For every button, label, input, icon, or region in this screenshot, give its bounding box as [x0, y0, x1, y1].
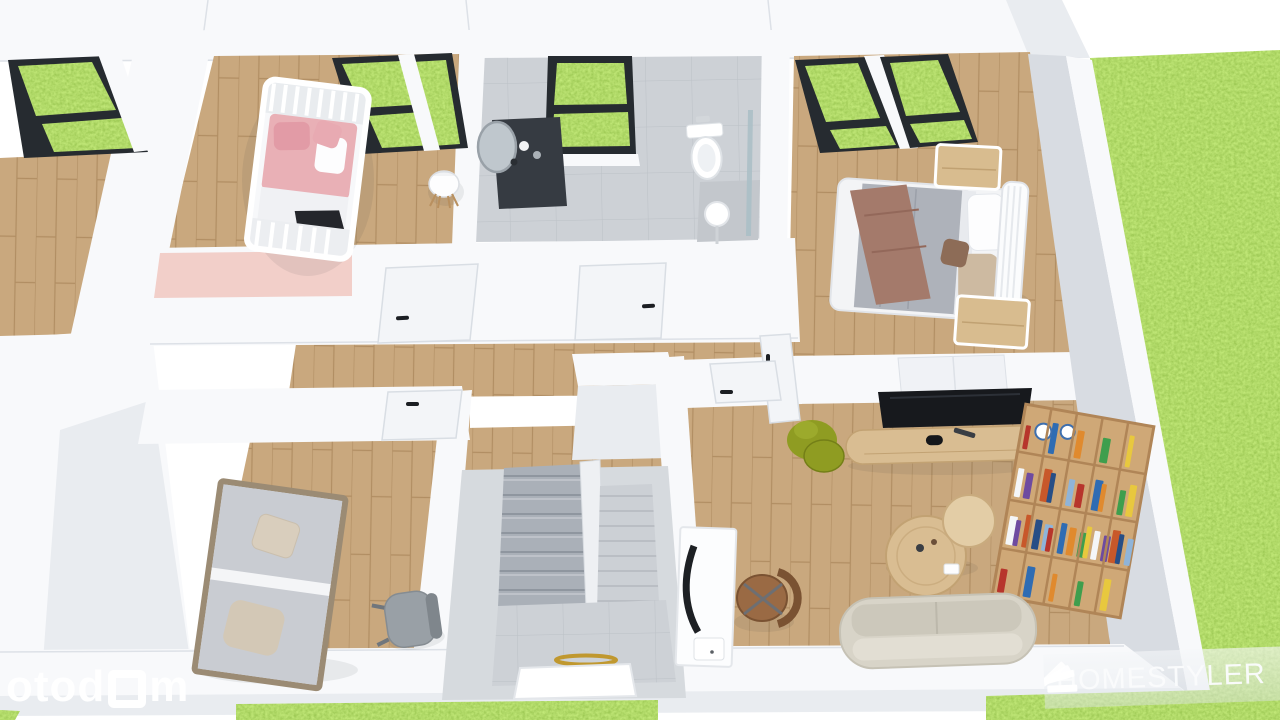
floorplan-3d-render: otodm HOMESTYLER: [0, 0, 1280, 720]
door-handle: [642, 304, 655, 309]
otodom-text-prefix: otod: [6, 662, 105, 712]
homestyler-fan-icon: [1043, 653, 1088, 697]
otodom-text-suffix: m: [149, 662, 189, 712]
cushion-split: [936, 602, 937, 634]
coffee-table-small: [943, 495, 995, 547]
staircase: [442, 460, 686, 700]
console-body: [846, 425, 1039, 464]
single-bed: [191, 477, 349, 691]
wall-panel-box: [694, 638, 724, 660]
table-book: [944, 564, 959, 574]
door-panel: [575, 263, 666, 340]
door-handle: [720, 390, 733, 394]
table-decor: [916, 544, 924, 552]
skylight-master: [795, 54, 978, 153]
window-grass-pane: [830, 126, 896, 149]
homestyler-watermark: HOMESTYLER: [1043, 645, 1280, 708]
nightstand-top: [935, 144, 1001, 189]
render-canvas: [0, 0, 1280, 720]
door-handle: [396, 316, 409, 321]
beanbag-highlight: [794, 421, 818, 439]
game-controller: [926, 435, 943, 445]
otodom-square-o-glyph: [108, 670, 146, 708]
faucet: [511, 159, 518, 166]
door-small-bedroom: [382, 390, 462, 440]
door-nursery: [378, 264, 478, 343]
crib-pillow-pink: [274, 122, 310, 151]
door-handle: [406, 402, 419, 406]
door-bathroom: [575, 263, 666, 340]
pillow-brown: [939, 238, 970, 269]
standing-mirror: [705, 202, 729, 226]
sink-bottle: [533, 151, 541, 159]
tv-console: [846, 425, 1039, 464]
round-mirror: [478, 122, 516, 172]
stair-flight-left: [498, 464, 590, 607]
beanbag-lobe: [804, 440, 844, 472]
window-grass-pane: [551, 112, 630, 147]
door-panel: [378, 264, 478, 343]
panel-dot: [710, 650, 714, 654]
door-living: [710, 361, 781, 403]
window-grass-pane: [910, 120, 972, 143]
sofa: [839, 593, 1037, 670]
toilet-button: [696, 116, 710, 123]
door-panel: [382, 390, 462, 440]
table-decor: [931, 539, 937, 545]
sink-bottle: [519, 141, 529, 151]
toilet-tank: [686, 123, 723, 138]
window-grass-pane: [554, 63, 627, 105]
otodom-watermark: otodm: [6, 662, 189, 712]
door-panel: [710, 361, 781, 403]
floor-opening: [514, 664, 636, 699]
crib: [246, 79, 370, 260]
